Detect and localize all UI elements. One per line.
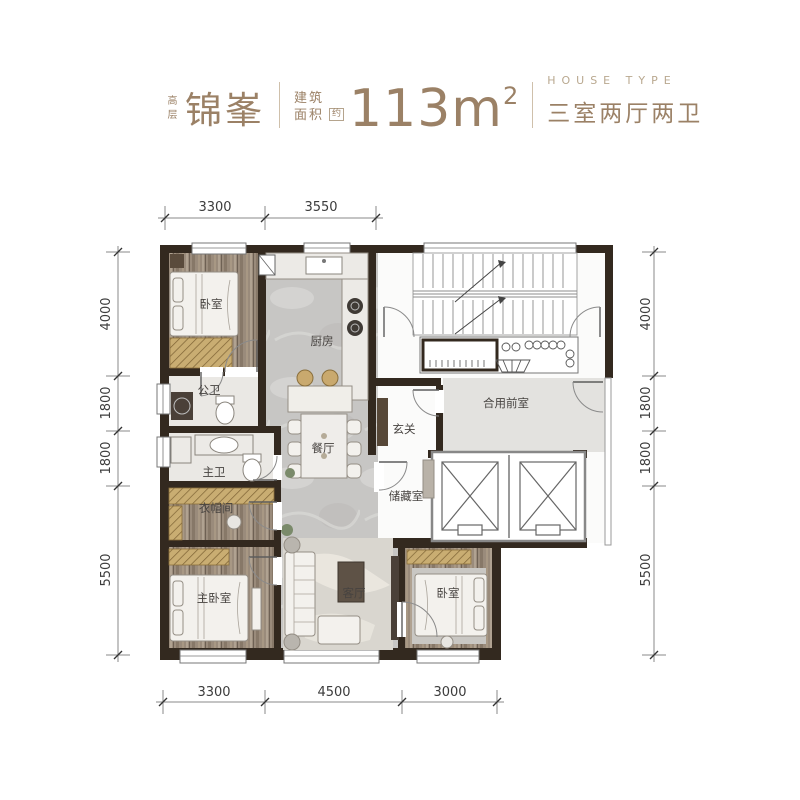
- side-table: [284, 634, 300, 650]
- wardrobe: [169, 506, 182, 540]
- room-label-foyer: 玄关: [393, 422, 416, 436]
- living-furniture: [281, 524, 399, 650]
- kitchen-counter-right: [342, 279, 368, 400]
- chair: [288, 442, 302, 456]
- chair: [347, 420, 361, 434]
- dim-top-2: 3550: [304, 200, 337, 215]
- room-label-living: 客厅: [343, 586, 366, 600]
- dresser: [169, 549, 229, 565]
- storage-furniture: [423, 460, 434, 498]
- floorplan-drawing: 卧室 厨房 公卫 主卫 衣帽间 主卧室 餐厅 客厅 玄关 储藏室 卧室 合用前室…: [0, 0, 800, 800]
- dim-bottom-1: 3300: [197, 685, 230, 700]
- foyer-furniture: [377, 398, 388, 446]
- pillow: [474, 578, 484, 602]
- dimensions-left: 4000 1800 1800 5500: [99, 246, 130, 662]
- dimensions-right: 4000 1800 1800 5500: [639, 246, 666, 662]
- pillow: [173, 610, 183, 635]
- kitchen-island: [288, 386, 352, 412]
- window-bottom-living: [284, 650, 379, 663]
- stool: [297, 370, 313, 386]
- dim-left-1: 4000: [99, 297, 114, 330]
- shower: [171, 437, 191, 463]
- dim-right-1: 4000: [639, 297, 654, 330]
- wardrobe: [170, 338, 232, 368]
- pillow: [474, 606, 484, 630]
- dim-left-4: 5500: [99, 553, 114, 586]
- faucet: [322, 259, 326, 263]
- toilet: [243, 459, 261, 481]
- window-bottom-bedroom: [417, 650, 479, 663]
- room-label-shared-lobby: 合用前室: [483, 396, 529, 410]
- pillow: [173, 306, 183, 330]
- room-label-storage: 储藏室: [389, 489, 424, 503]
- window-bottom-master: [180, 650, 246, 663]
- nightstand: [170, 254, 184, 268]
- utility-room: [420, 337, 578, 373]
- room-label-bedroom-right: 卧室: [437, 586, 460, 600]
- window-left-2: [157, 437, 170, 467]
- lounge-chair: [318, 616, 360, 644]
- room-label-guest-bath: 公卫: [198, 383, 221, 397]
- stairwell: [413, 253, 577, 335]
- dim-right-4: 5500: [639, 553, 654, 586]
- dim-right-3: 1800: [639, 441, 654, 474]
- lobby-floor: [443, 378, 605, 452]
- bench: [252, 588, 261, 630]
- chair: [347, 442, 361, 456]
- window-top-stairwell: [424, 243, 576, 254]
- dim-left-3: 1800: [99, 441, 114, 474]
- window-top-bedroom: [192, 243, 246, 254]
- pillow: [173, 278, 183, 302]
- room-label-master-bath: 主卫: [203, 465, 226, 479]
- toilet: [216, 402, 234, 424]
- room-label-dining: 餐厅: [312, 441, 335, 455]
- elevator-2: [520, 462, 576, 535]
- plant: [281, 524, 293, 536]
- elevator-block: [432, 452, 585, 541]
- chair: [347, 464, 361, 478]
- wardrobe: [407, 550, 471, 564]
- room-label-master-bedroom: 主卧室: [197, 591, 232, 605]
- dimensions-bottom: 3300 4500 3000: [156, 685, 504, 714]
- burner: [347, 320, 363, 336]
- dim-left-2: 1800: [99, 386, 114, 419]
- stool: [441, 636, 453, 648]
- window-top-kitchen: [304, 243, 350, 254]
- window-left-1: [157, 384, 170, 414]
- stool: [227, 515, 241, 529]
- dim-top-1: 3300: [198, 200, 231, 215]
- shoe-cabinet: [377, 398, 388, 446]
- pillow: [173, 581, 183, 606]
- side-table: [284, 537, 300, 553]
- floorplan-page: 高层 锦峯 建筑 面积 约 113m2 HOUSE TYPE 三室两厅两卫: [0, 0, 800, 800]
- dim-bottom-3: 3000: [433, 685, 466, 700]
- basin: [210, 437, 238, 453]
- stool: [322, 370, 338, 386]
- plant: [285, 468, 295, 478]
- room-label-cloakroom: 衣帽间: [199, 501, 234, 515]
- elevator-1: [442, 462, 498, 535]
- dim-bottom-2: 4500: [317, 685, 350, 700]
- room-label-bedroom-top: 卧室: [200, 297, 223, 311]
- burner: [347, 298, 363, 314]
- public-right-wall: [605, 378, 611, 545]
- dim-right-2: 1800: [639, 386, 654, 419]
- room-label-kitchen: 厨房: [311, 334, 334, 348]
- chair: [288, 420, 302, 434]
- shelf: [423, 460, 434, 498]
- dimensions-top: 3300 3550: [158, 200, 383, 230]
